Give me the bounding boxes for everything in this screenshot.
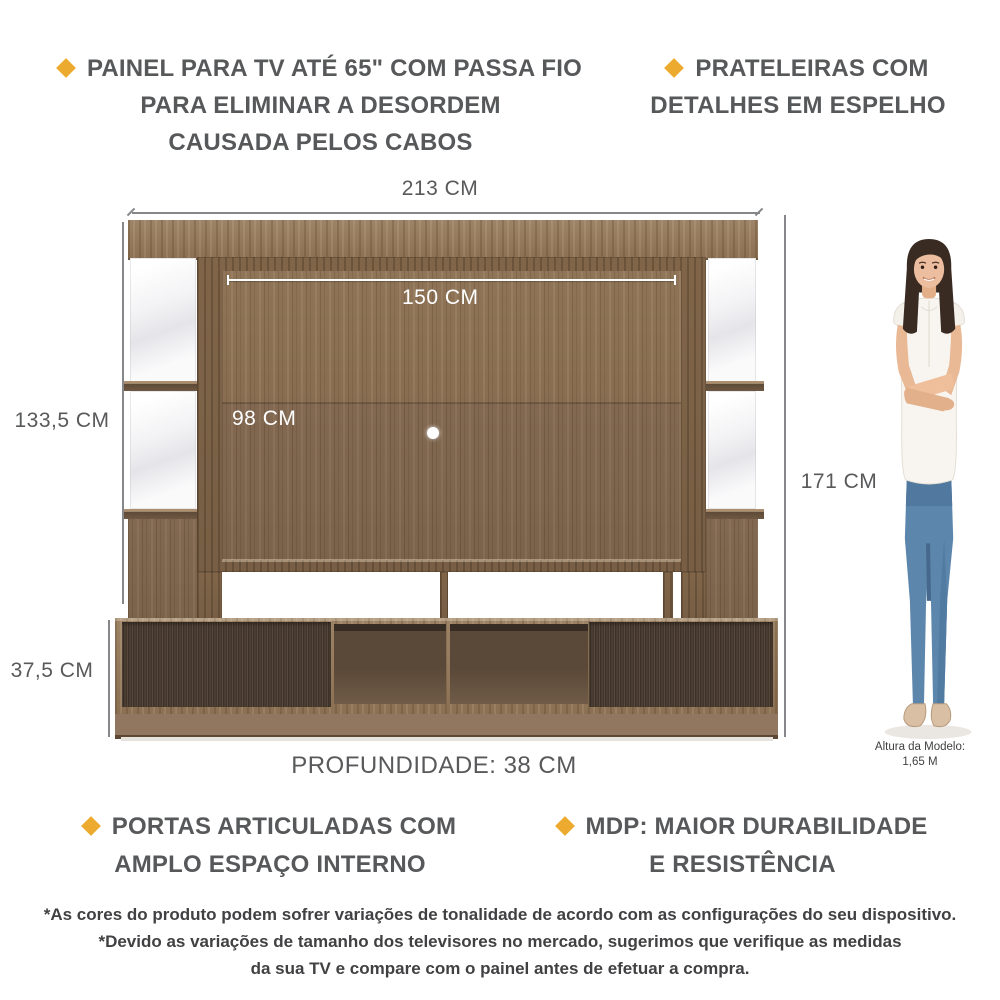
model-caption-line: Altura da Modelo: [845,740,995,755]
feature-text: PORTAS ARTICULADAS COM [112,813,456,840]
feature-line: PAINEL PARA TV ATÉ 65" COM PASSA FIO [28,50,613,87]
left-shelf-upper [123,381,197,391]
dimension-panel-width-line [227,279,676,281]
support-mid-left [440,572,448,619]
diamond-bullet-icon [56,58,76,78]
feature-line: PORTAS ARTICULADAS COM [35,808,505,846]
open-compartment-right [450,624,588,704]
diamond-bullet-icon [81,816,101,836]
diamond-bullet-icon [555,816,575,836]
panel-bottom-shelf-edge [222,559,681,562]
feature-text: PRATELEIRAS COM [695,55,928,82]
cabinet-door-right [589,622,773,707]
support-left [197,572,222,619]
right-mirror-upper [708,258,756,382]
feature-text: AMPLO ESPAÇO INTERNO [35,846,505,884]
panel-seam [222,402,681,404]
disclaimer-line: da sua TV e compare com o painel antes d… [0,955,1000,982]
right-mirror-lower [708,391,756,509]
disclaimer-line: *Devido as variações de tamanho dos tele… [0,928,1000,955]
disclaimer: *As cores do produto podem sofrer variaç… [0,901,1000,982]
cable-hole [427,427,439,439]
feature-text: PARA ELIMINAR A DESORDEM [28,87,613,124]
dimension-tick [227,275,229,285]
dimension-tick [674,275,676,285]
feature-text: DETALHES EM ESPELHO [628,87,968,124]
dimension-tick [755,208,763,216]
unit-top-header [128,220,758,260]
feature-bottom-right: MDP: MAIOR DURABILIDADE E RESISTÊNCIA [515,808,970,884]
feature-bottom-left: PORTAS ARTICULADAS COM AMPLO ESPAÇO INTE… [35,808,505,884]
feature-top-left: PAINEL PARA TV ATÉ 65" COM PASSA FIO PAR… [28,50,613,161]
model-ground-shadow [885,725,972,739]
left-shelf-lower [123,509,197,519]
left-mirror-lower [130,391,196,509]
model-jeans [905,476,953,704]
support-mid-right [663,572,673,619]
feature-top-right: PRATELEIRAS COM DETALHES EM ESPELHO [628,50,968,124]
feature-text: E RESISTÊNCIA [515,846,970,884]
feature-line: MDP: MAIOR DURABILIDADE [515,808,970,846]
dimension-side-height-line [122,222,124,604]
cabinet-plinth [115,714,778,739]
right-shelf-upper [704,381,764,391]
disclaimer-line: *As cores do produto podem sofrer variaç… [0,901,1000,928]
feature-text: CAUSADA PELOS CABOS [28,124,613,161]
model-caption: Altura da Modelo: 1,65 M [845,740,995,770]
dimension-panel-height-label: 98 CM [232,407,296,431]
support-right [681,572,706,619]
model-caption-line: 1,65 M [845,755,995,770]
dimension-base-height-line [108,620,110,737]
cabinet-door-left [122,622,331,707]
diamond-bullet-icon [664,58,684,78]
dimension-depth-label: PROFUNDIDADE: 38 CM [238,752,630,780]
open-compartment-left [334,624,446,704]
dimension-side-height-label: 133,5 CM [10,409,114,433]
feature-text: MDP: MAIOR DURABILIDADE [586,813,928,840]
left-mirror-upper [130,258,196,382]
floor-shadow [121,737,773,741]
dimension-total-height-line [784,215,786,737]
dimension-base-height-label: 37,5 CM [4,659,100,683]
model-shoes [904,704,951,727]
right-tower-base [706,519,758,618]
dimension-panel-width-label: 150 CM [402,286,479,310]
dimension-total-width-label: 213 CM [330,177,550,201]
right-shelf-lower [704,509,764,519]
feature-line: PRATELEIRAS COM [628,50,968,87]
feature-text: PAINEL PARA TV ATÉ 65" COM PASSA FIO [87,55,582,82]
model-photo [856,236,992,742]
dimension-total-width-line [132,212,760,214]
product-infographic: PAINEL PARA TV ATÉ 65" COM PASSA FIO PAR… [0,0,1000,1000]
left-tower-base [128,519,197,618]
